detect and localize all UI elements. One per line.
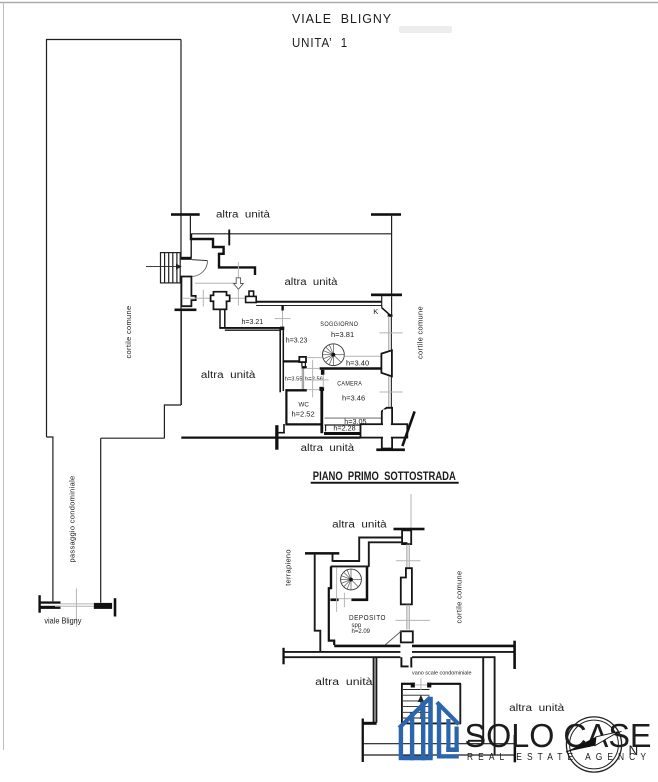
svg-text:altra unità: altra unità <box>332 519 387 530</box>
svg-text:altra unità: altra unità <box>301 443 355 454</box>
svg-text:altra unità: altra unità <box>315 677 373 688</box>
svg-text:cortile comune: cortile comune <box>416 306 425 359</box>
svg-text:h=2.52: h=2.52 <box>292 409 315 418</box>
svg-text:WC: WC <box>299 402 310 409</box>
svg-text:cortile comune: cortile comune <box>455 571 464 624</box>
svg-text:altra unità: altra unità <box>285 277 338 288</box>
svg-text:SOGGIORNO: SOGGIORNO <box>320 321 358 328</box>
svg-text:h=3.23: h=3.23 <box>286 338 308 345</box>
svg-text:h=3.81: h=3.81 <box>331 330 354 339</box>
svg-text:REAL ESTATE AGENCY: REAL ESTATE AGENCY <box>467 752 651 763</box>
svg-text:vano scale condominiale: vano scale condominiale <box>412 670 472 676</box>
svg-text:VIALE BLIGNY: VIALE BLIGNY <box>292 11 392 26</box>
svg-text:UNITA’ 1: UNITA’ 1 <box>292 35 348 50</box>
svg-text:h=3.40: h=3.40 <box>346 359 369 368</box>
svg-text:altra unità: altra unità <box>201 370 256 381</box>
svg-text:K: K <box>373 307 378 316</box>
svg-text:h=2.28: h=2.28 <box>333 424 355 433</box>
svg-text:viale Bligny: viale Bligny <box>44 616 82 626</box>
svg-text:PIANO PRIMO SOTTOSTRADA: PIANO PRIMO SOTTOSTRADA <box>313 471 456 483</box>
svg-text:h=2.09: h=2.09 <box>352 629 371 635</box>
svg-text:h=3.46: h=3.46 <box>342 393 365 402</box>
svg-text:SOLO CASE: SOLO CASE <box>465 717 652 754</box>
svg-text:altra unità: altra unità <box>509 703 565 714</box>
svg-text:cortile comune: cortile comune <box>124 306 133 359</box>
svg-text:CAMERA: CAMERA <box>337 381 362 388</box>
svg-text:DEPOSITO: DEPOSITO <box>349 613 386 622</box>
svg-text:terrapieno: terrapieno <box>283 549 292 586</box>
svg-text:h=3.21: h=3.21 <box>242 319 264 326</box>
svg-text:h=3.55: h=3.55 <box>285 377 303 383</box>
svg-text:altra unità: altra unità <box>216 210 270 221</box>
svg-text:passaggio condominiale: passaggio condominiale <box>68 475 77 562</box>
